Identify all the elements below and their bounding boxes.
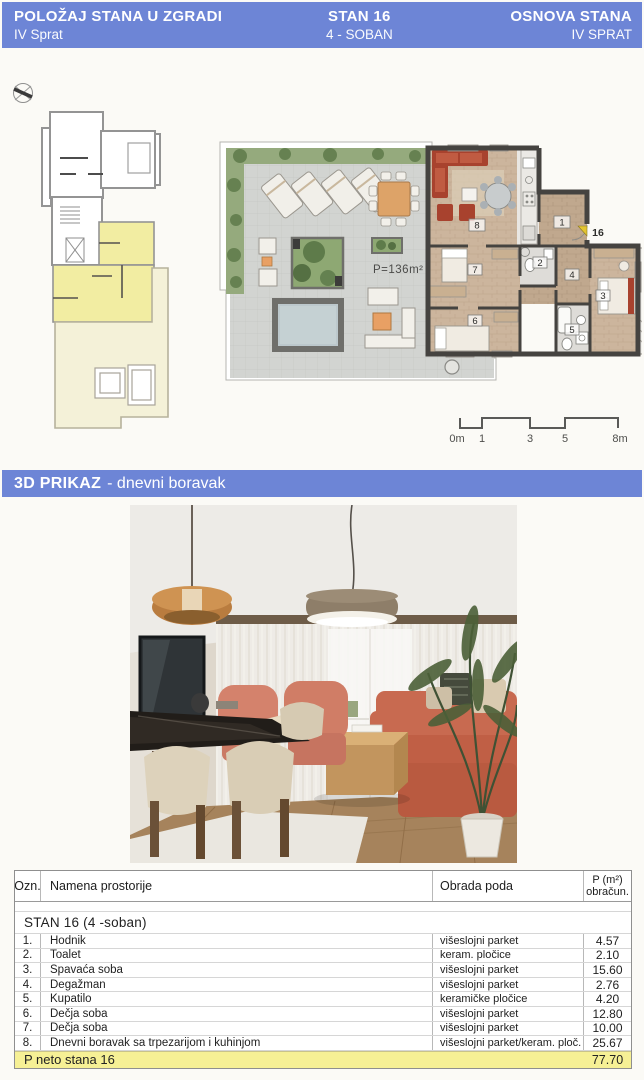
- compass-icon: [14, 84, 33, 103]
- apartment: 8 1 2 7 4 3 6 5 16: [428, 145, 642, 357]
- total-value: 77.70: [584, 1052, 631, 1068]
- bedroom-furniture: [594, 248, 635, 314]
- svg-text:7: 7: [472, 265, 477, 276]
- row-area-value: 4.20: [584, 992, 631, 1006]
- row-number: 6.: [15, 1007, 41, 1021]
- row-number: 1.: [15, 934, 41, 948]
- real-estate-sheet: { "header": { "left_title": "POLOŽAJ STA…: [0, 0, 644, 1080]
- unit-rooms: 4 - SOBAN: [326, 26, 393, 43]
- row-floor-finish: višeslojni parket: [433, 934, 584, 948]
- row-number: 2.: [15, 949, 41, 963]
- svg-text:6: 6: [472, 316, 477, 327]
- svg-text:16: 16: [592, 227, 604, 239]
- plan-title: OSNOVA STANA: [510, 7, 632, 26]
- svg-text:5: 5: [569, 325, 574, 336]
- table-row: 5. Kupatilo keramičke pločice 4.20: [15, 992, 631, 1007]
- svg-text:3: 3: [600, 291, 605, 302]
- page-title: POLOŽAJ STANA U ZGRADI: [14, 7, 222, 26]
- svg-text:8: 8: [474, 221, 479, 232]
- row-room-name: Degažman: [41, 978, 433, 992]
- svg-text:4: 4: [569, 270, 574, 281]
- col-namena: Namena prostorije: [41, 871, 433, 901]
- col-obrada: Obrada poda: [433, 871, 584, 901]
- table-row: 6. Dečja soba višeslojni parket 12.80: [15, 1007, 631, 1022]
- floor-plan: P=136m²: [210, 130, 642, 395]
- row-floor-finish: keramičke pločice: [433, 992, 584, 1006]
- header-position-block: POLOŽAJ STANA U ZGRADI IV Sprat: [14, 6, 268, 44]
- planter-center: [292, 238, 343, 288]
- svg-text:1: 1: [479, 433, 485, 445]
- table-row: 2. Toalet keram. pločice 2.10: [15, 949, 631, 964]
- table-row: 8. Dnevni boravak sa trpezarijom i kuhin…: [15, 1036, 631, 1051]
- total-label: P neto stana 16: [15, 1052, 584, 1068]
- header-plan-block: OSNOVA STANA IV SPRAT: [450, 6, 632, 44]
- header-bar: POLOŽAJ STANA U ZGRADI IV Sprat STAN 16 …: [2, 2, 642, 48]
- table-row: 1. Hodnik višeslojni parket 4.57: [15, 934, 631, 949]
- svg-text:8m: 8m: [612, 433, 627, 445]
- section-3d-bar: 3D PRIKAZ - dnevni boravak: [2, 470, 642, 497]
- svg-text:3: 3: [527, 433, 533, 445]
- table-total-row: P neto stana 16 77.70: [15, 1051, 631, 1068]
- row-number: 5.: [15, 992, 41, 1006]
- svg-text:2: 2: [537, 258, 542, 269]
- table-body: 1. Hodnik višeslojni parket 4.57 2. Toal…: [15, 934, 631, 1051]
- row-floor-finish: višeslojni parket: [433, 963, 584, 977]
- row-area-value: 15.60: [584, 963, 631, 977]
- section-3d-title: 3D PRIKAZ: [14, 475, 101, 493]
- row-floor-finish: višeslojni parket: [433, 978, 584, 992]
- table-row: 3. Spavaća soba višeslojni parket 15.60: [15, 963, 631, 978]
- row-room-name: Dečja soba: [41, 1007, 433, 1021]
- svg-text:0m: 0m: [449, 433, 464, 445]
- coffee-table: [462, 188, 477, 201]
- row-area-value: 12.80: [584, 1007, 631, 1021]
- svg-text:1: 1: [559, 218, 564, 229]
- row-area-value: 2.10: [584, 949, 631, 963]
- kitchen-counter: [521, 150, 537, 244]
- header-unit-block: STAN 16 4 - SOBAN: [268, 6, 450, 44]
- row-room-name: Toalet: [41, 949, 433, 963]
- row-number: 8.: [15, 1036, 41, 1050]
- col-ozn: Ozn.: [15, 871, 41, 901]
- column: [445, 360, 459, 374]
- pool: [272, 298, 344, 352]
- table-section-row: STAN 16 (4 -soban): [15, 912, 631, 934]
- col-area: P (m²) obračun.: [584, 871, 631, 901]
- row-room-name: Kupatilo: [41, 992, 433, 1006]
- scale-labels: 0m 1 3 5 8m: [449, 433, 627, 445]
- section-3d-subtitle: - dnevni boravak: [107, 475, 225, 493]
- row-room-name: Dečja soba: [41, 1022, 433, 1036]
- table-header-row: Ozn. Namena prostorije Obrada poda P (m²…: [15, 871, 631, 902]
- plan-floor: IV SPRAT: [571, 26, 632, 43]
- row-area-value: 10.00: [584, 1022, 631, 1036]
- row-number: 4.: [15, 978, 41, 992]
- building-position-map: [2, 62, 202, 457]
- row-room-name: Spavaća soba: [41, 963, 433, 977]
- unit-title: STAN 16: [328, 7, 391, 26]
- row-room-name: Hodnik: [41, 934, 433, 948]
- svg-text:5: 5: [562, 433, 568, 445]
- table-row: 4. Degažman višeslojni parket 2.76: [15, 978, 631, 993]
- table-gap-row: [15, 902, 631, 912]
- row-area-value: 4.57: [584, 934, 631, 948]
- terrace-area-label: P=136m²: [373, 264, 423, 276]
- planter-small: [372, 238, 402, 253]
- row-floor-finish: višeslojni parket: [433, 1007, 584, 1021]
- row-number: 7.: [15, 1022, 41, 1036]
- scale-bar: 0m 1 3 5 8m: [440, 393, 640, 448]
- row-number: 3.: [15, 963, 41, 977]
- table-row: 7. Dečja soba višeslojni parket 10.00: [15, 1022, 631, 1037]
- render-3d-image: [130, 505, 517, 863]
- row-floor-finish: višeslojni parket: [433, 1022, 584, 1036]
- area-table: Ozn. Namena prostorije Obrada poda P (m²…: [14, 870, 632, 1069]
- row-floor-finish: višeslojni parket/keram. ploč.: [433, 1036, 584, 1050]
- row-area-value: 25.67: [584, 1036, 631, 1050]
- row-floor-finish: keram. pločice: [433, 949, 584, 963]
- floor-subtitle: IV Sprat: [14, 26, 63, 43]
- row-area-value: 2.76: [584, 978, 631, 992]
- row-room-name: Dnevni boravak sa trpezarijom i kuhinjom: [41, 1036, 433, 1050]
